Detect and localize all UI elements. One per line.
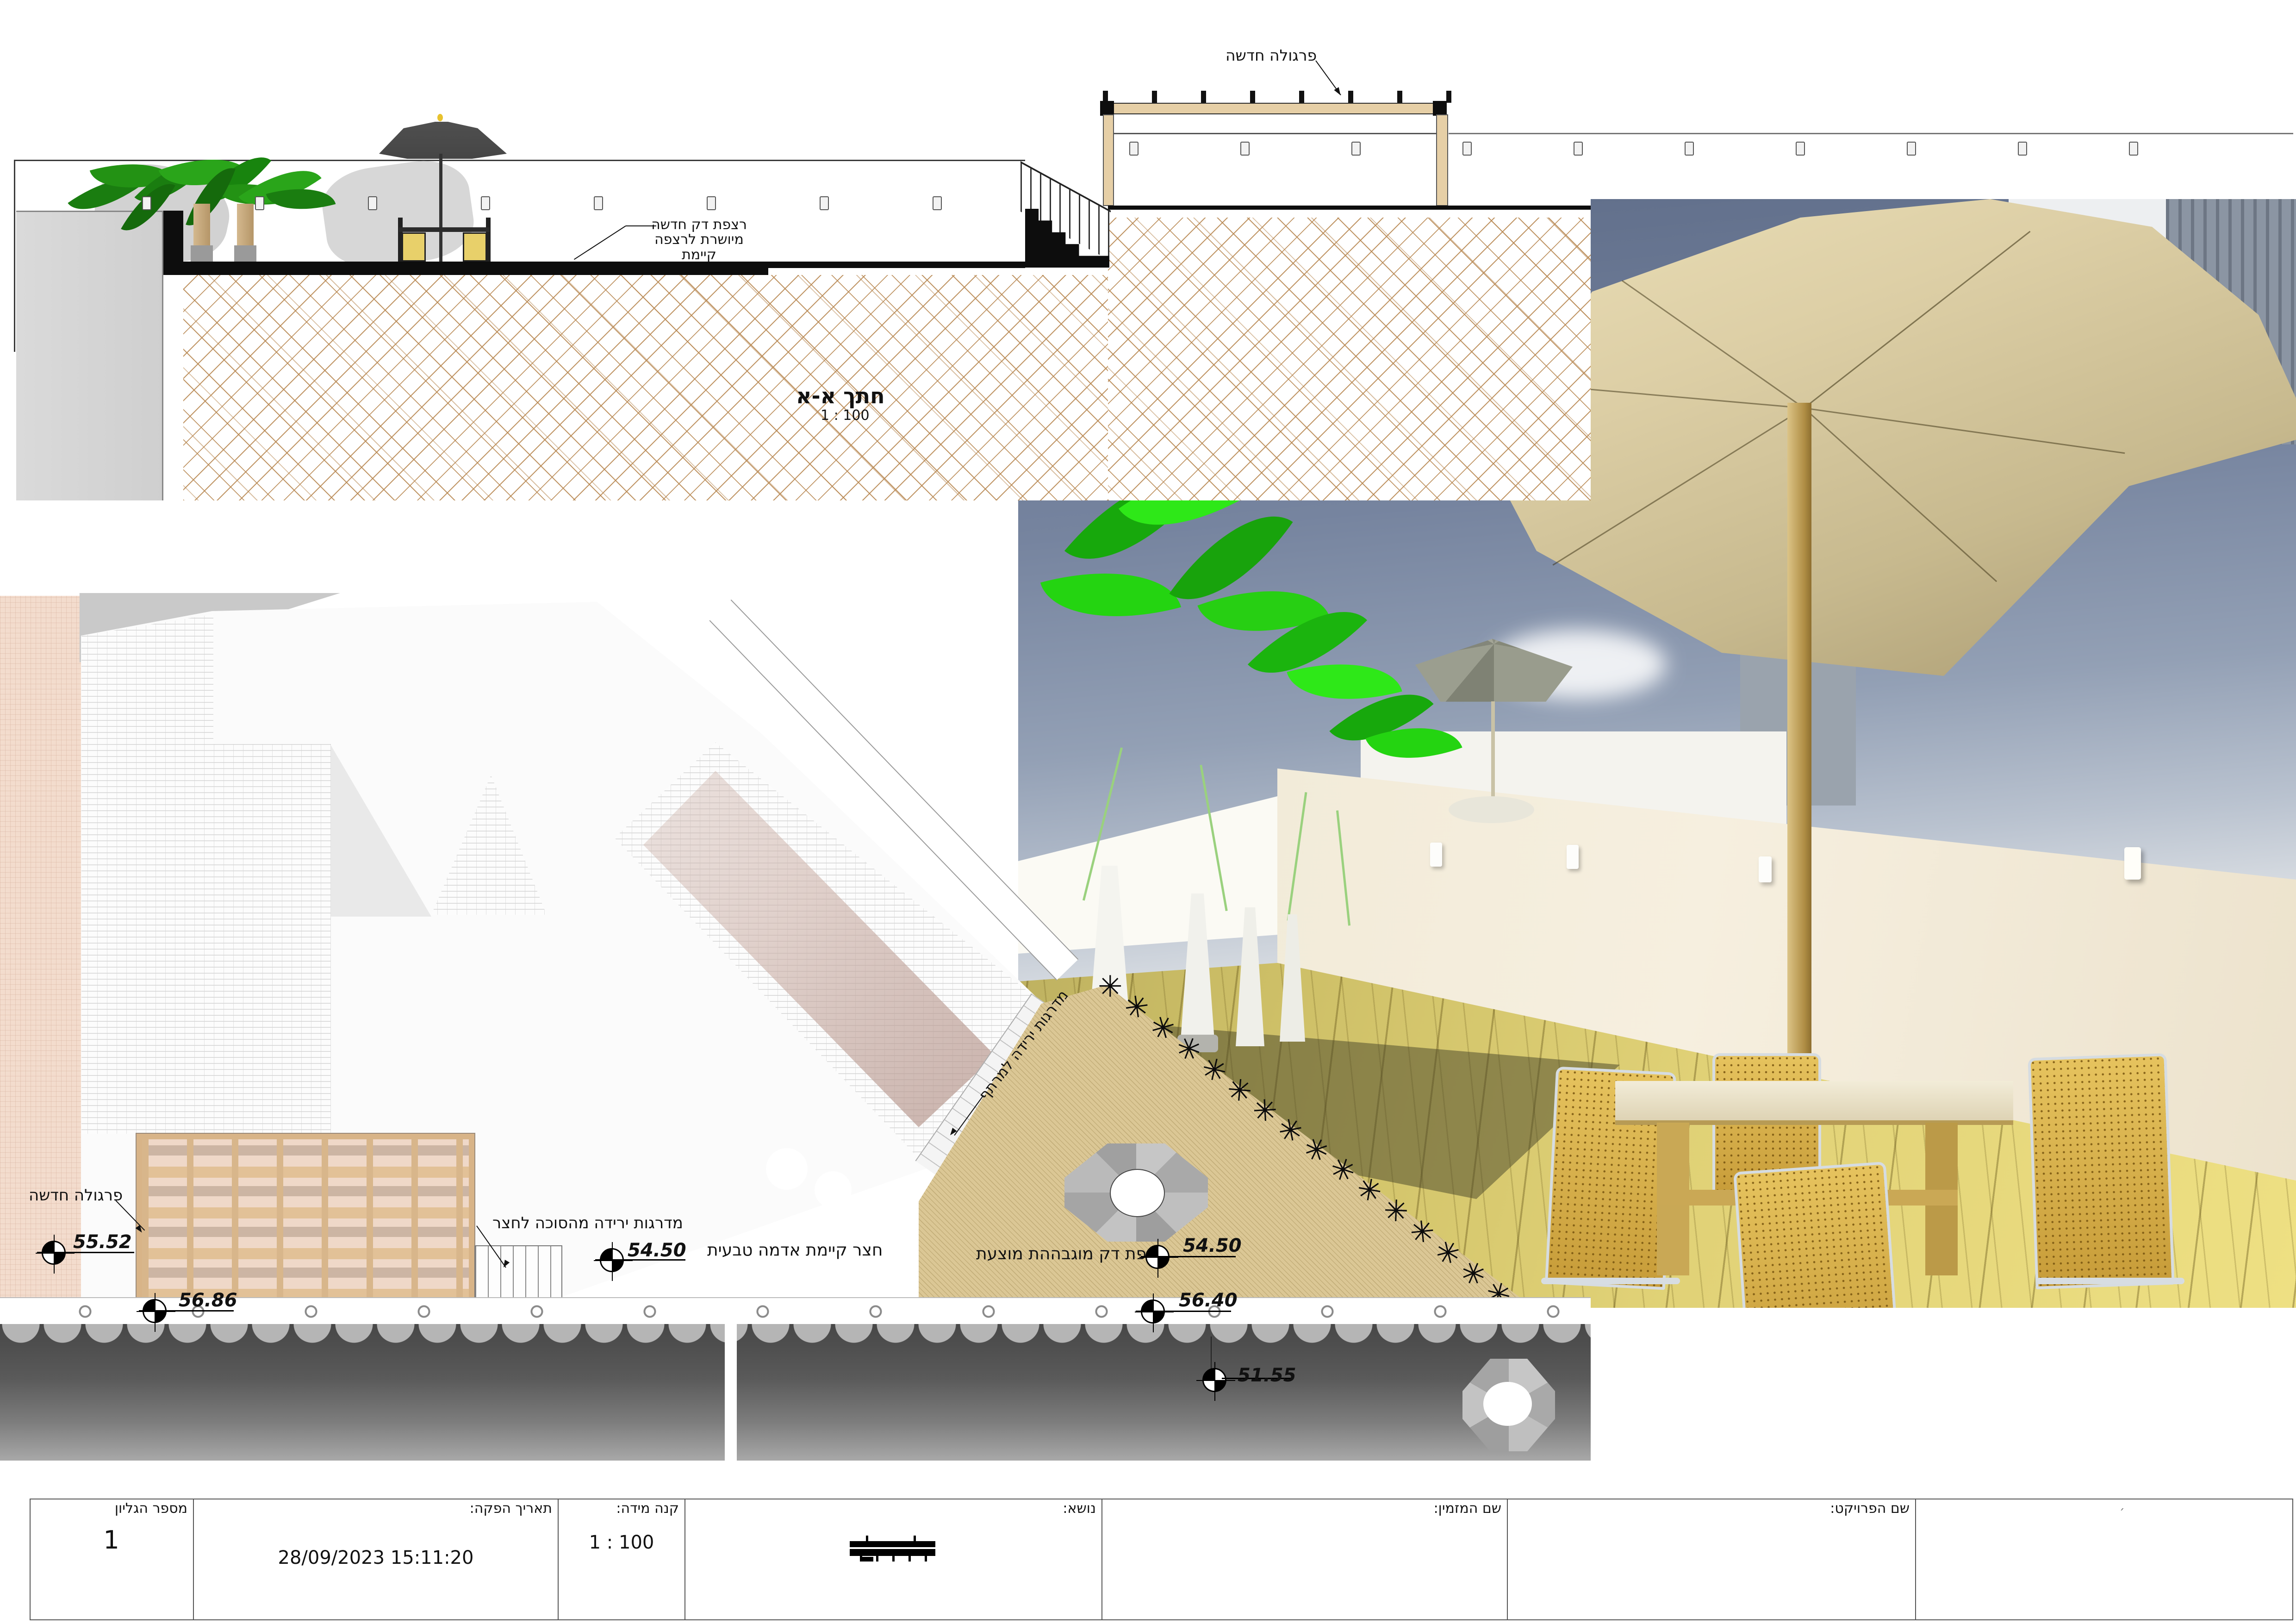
field-label: קנה מידה: [616, 1500, 679, 1517]
titleblock-cell-extra: ׳ [1915, 1499, 2293, 1620]
drawing-sheet: ✳✳✳✳✳✳✳✳✳✳✳✳✳✳✳✳ פרגולה חדשה מדרגות יריד… [0, 0, 2296, 1624]
leader-line [626, 225, 656, 226]
pergola-beam-cap [1433, 101, 1447, 116]
scale-bar-tick [914, 1536, 916, 1541]
pergola-column [1436, 114, 1448, 206]
pergola-post-stub [1250, 91, 1255, 103]
scale-bar-tick [908, 1556, 911, 1562]
pergola-column [1103, 114, 1114, 206]
scale-bar-tick [892, 1556, 895, 1562]
section-label-deck-note: רצפת דק חדשה מיושרת לרצפה קיימת [645, 218, 753, 262]
graphic-scale-bar [850, 1536, 935, 1562]
section-terrace-line [1108, 206, 1591, 210]
pergola-post-stub [1446, 91, 1451, 103]
section-view-scale: 1 : 100 [821, 407, 870, 424]
section-view-title: חתך א-א [796, 383, 885, 408]
titleblock-cell-issue-date: תאריך הפקה: 28/09/2023 15:11:20 [193, 1499, 558, 1620]
scale-bar-segment [850, 1541, 935, 1547]
scale-bar-block [861, 1557, 873, 1562]
scale-bar-segment [850, 1549, 935, 1556]
deck-note-line1: רצפת דק חדשה [645, 218, 753, 232]
pergola-post-stub [1201, 91, 1206, 103]
field-value: 28/09/2023 15:11:20 [194, 1547, 558, 1568]
field-label: שם המזמין: [1434, 1500, 1501, 1517]
field-value: 1 : 100 [559, 1532, 684, 1553]
pergola-post-stub [1397, 91, 1402, 103]
field-label: שם הפרויקט: [1830, 1500, 1910, 1517]
section-label-pergola: פרגולה חדשה [1226, 46, 1317, 64]
titleblock-cell-sheet-number: מספר הגליון 1 [30, 1499, 193, 1620]
pergola-beam-cap [1100, 101, 1114, 116]
field-label: מספר הגליון [115, 1500, 187, 1517]
field-label: נושא: [1063, 1500, 1096, 1517]
scale-bar-tick [866, 1536, 868, 1541]
field-value: 1 [30, 1525, 193, 1555]
section-view: פרגולה חדשה רצפת דק חדשה מיושרת לרצפה קי… [0, 0, 2296, 1624]
pergola-post-stub [1152, 91, 1157, 103]
scale-bar-tick [876, 1556, 878, 1562]
pergola-post-stub [1348, 91, 1353, 103]
field-label: תאריך הפקה: [470, 1500, 552, 1517]
titleblock-cell-project: שם הפרויקט: [1507, 1499, 1915, 1620]
scale-bar-tick [925, 1556, 927, 1562]
pergola-post-stub [1299, 91, 1304, 103]
pergola-beam [1100, 103, 1447, 114]
deck-note-line2: מיושרת לרצפה קיימת [645, 232, 753, 262]
corner-note: ׳ [2120, 1504, 2125, 1518]
pergola-post-stubs [0, 0, 2296, 1624]
titleblock-cell-scale: קנה מידה: 1 : 100 [558, 1499, 684, 1620]
titleblock-cell-client: שם המזמין: [1101, 1499, 1507, 1620]
